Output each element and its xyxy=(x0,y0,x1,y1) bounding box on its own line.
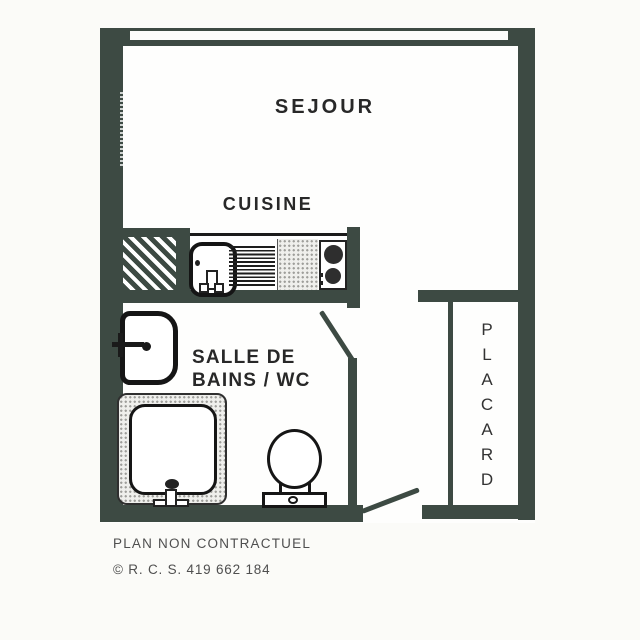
bathtub-faucet-icon xyxy=(165,489,177,507)
washbasin-faucet-icon xyxy=(112,342,144,347)
kitchen-sink-drain xyxy=(195,260,200,266)
stove-burner-top xyxy=(324,245,343,264)
placard-letter: C xyxy=(481,395,493,415)
stove-burner-bottom xyxy=(325,268,341,284)
floor-plan-page: P L A C A R D SEJOUR CUISINE SALLE DE BA… xyxy=(0,0,640,640)
worktop-stipple xyxy=(277,239,318,290)
wall-bottom-right xyxy=(422,505,535,519)
wall-kitchen-stub xyxy=(123,228,176,237)
wall-kitchen-separator xyxy=(176,228,190,290)
wall-bathroom-right xyxy=(348,358,357,507)
stove-knob-1 xyxy=(321,273,323,277)
wall-right xyxy=(518,28,535,520)
washbasin-faucet-tick xyxy=(118,333,123,357)
footer-disclaimer: PLAN NON CONTRACTUEL xyxy=(113,536,311,551)
stove-knob-2 xyxy=(321,281,323,285)
wall-sejour-entry xyxy=(418,290,518,302)
toilet-icon xyxy=(267,429,322,489)
toilet-button xyxy=(288,496,298,504)
placard-letter: P xyxy=(481,320,492,340)
footer-rcs: © R. C. S. 419 662 184 xyxy=(113,562,270,577)
drainboard-icon xyxy=(229,246,275,286)
duct-hatch-icon xyxy=(123,237,176,290)
kitchen-faucet-foot-left xyxy=(199,283,209,293)
placard-partition xyxy=(448,302,453,507)
placard-letter: A xyxy=(481,420,492,440)
room-label-cuisine: CUISINE xyxy=(206,194,330,215)
placard-letter: L xyxy=(482,345,491,365)
bathtub-drain xyxy=(165,479,179,489)
bathroom-label-line1: SALLE DE xyxy=(192,346,311,369)
room-label-sejour: SEJOUR xyxy=(258,96,392,119)
placard-letter: R xyxy=(481,445,493,465)
window-icon xyxy=(130,31,508,40)
kitchen-faucet-foot-right xyxy=(214,283,224,293)
placard-letter: A xyxy=(481,370,492,390)
wall-left-seam xyxy=(120,92,123,168)
room-label-bathroom: SALLE DE BAINS / WC xyxy=(192,346,311,392)
floor-plan: P L A C A R D SEJOUR CUISINE SALLE DE BA… xyxy=(0,0,640,640)
room-label-placard: P L A C A R D xyxy=(469,320,505,490)
bathroom-label-line2: BAINS / WC xyxy=(192,369,311,392)
placard-letter: D xyxy=(481,470,493,490)
washbasin-knob xyxy=(142,342,151,351)
